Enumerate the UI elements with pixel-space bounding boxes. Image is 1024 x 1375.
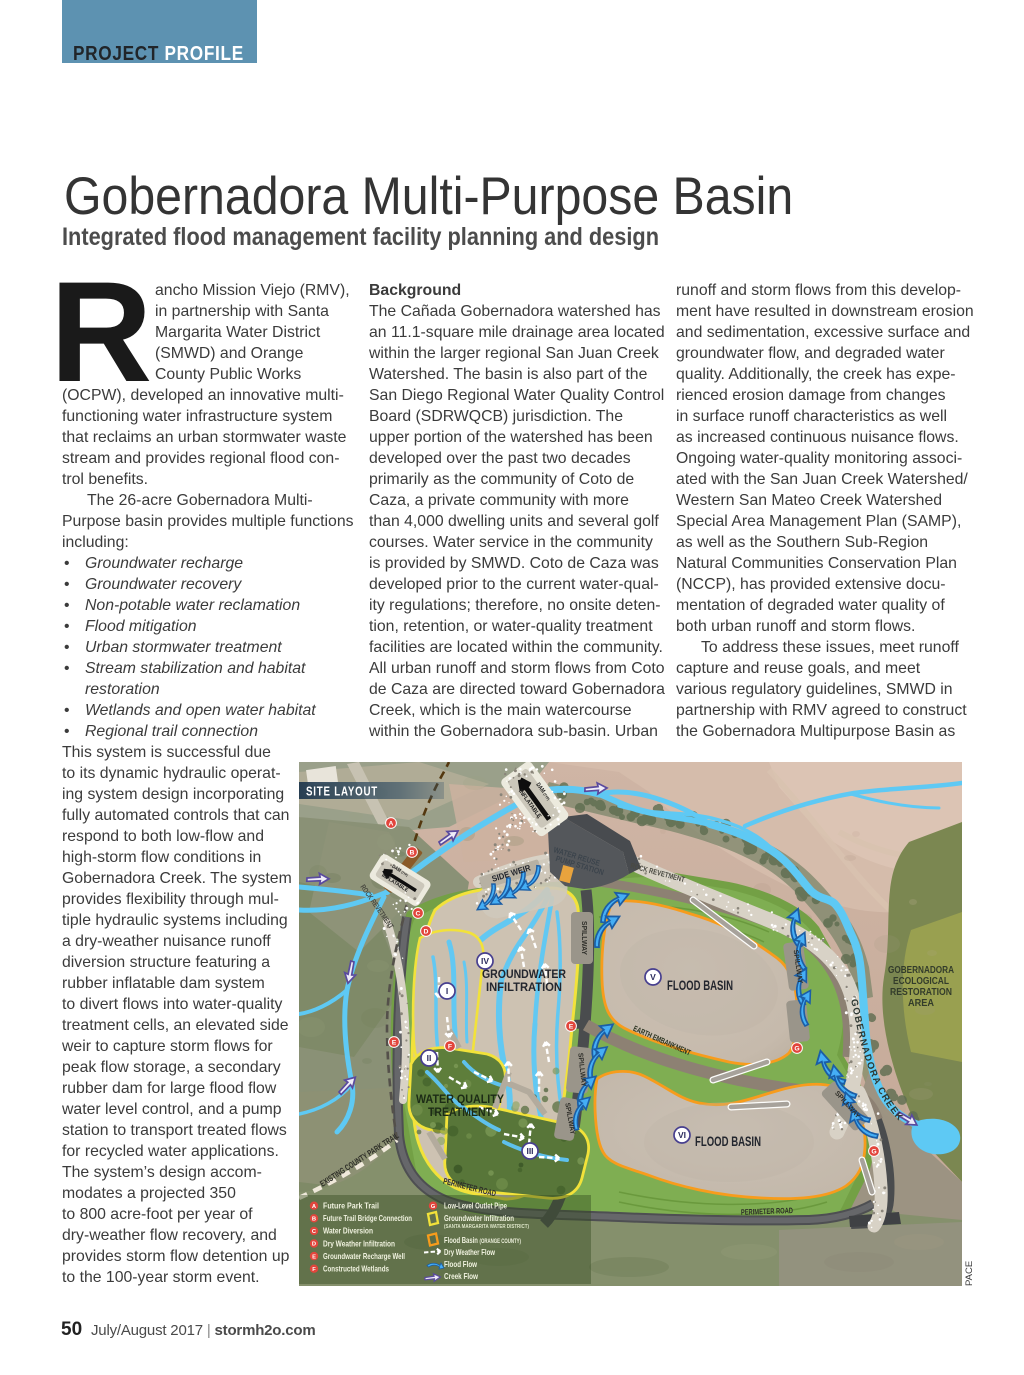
svg-text:G: G: [794, 1046, 799, 1053]
svg-text:Flood Flow: Flood Flow: [444, 1260, 477, 1269]
svg-text:E: E: [569, 1024, 574, 1031]
svg-text:B: B: [312, 1217, 316, 1223]
svg-text:PERIMETER ROAD: PERIMETER ROAD: [741, 1206, 793, 1217]
svg-text:Water Diversion: Water Diversion: [323, 1227, 373, 1236]
svg-text:IV: IV: [481, 956, 489, 966]
svg-text:Future Trail Bridge Connection: Future Trail Bridge Connection: [323, 1214, 412, 1223]
svg-text:Constructed Wetlands: Constructed Wetlands: [323, 1265, 389, 1274]
svg-text:II: II: [427, 1053, 432, 1063]
svg-text:Groundwater Infiltration: Groundwater Infiltration: [444, 1214, 514, 1223]
svg-text:A: A: [389, 821, 394, 828]
svg-text:C: C: [416, 911, 421, 918]
svg-text:F: F: [312, 1267, 316, 1273]
svg-text:INFILTRATION: INFILTRATION: [486, 982, 562, 994]
svg-text:D: D: [312, 1242, 316, 1248]
svg-text:Low-Level Outlet Pipe: Low-Level Outlet Pipe: [444, 1202, 507, 1211]
svg-text:E: E: [392, 1040, 397, 1047]
svg-text:SITE LAYOUT: SITE LAYOUT: [306, 785, 378, 799]
svg-text:GOBERNADORA: GOBERNADORA: [888, 965, 954, 976]
svg-text:F: F: [448, 1044, 452, 1051]
svg-text:G: G: [431, 1204, 436, 1210]
svg-text:Creek Flow: Creek Flow: [444, 1272, 478, 1281]
svg-text:FLOOD BASIN: FLOOD BASIN: [667, 978, 733, 993]
svg-text:V: V: [650, 972, 656, 982]
svg-text:Dry Weather Flow: Dry Weather Flow: [444, 1248, 495, 1257]
svg-text:Groundwater Recharge Well: Groundwater Recharge Well: [323, 1252, 405, 1261]
svg-text:Future Park Trail: Future Park Trail: [323, 1202, 379, 1211]
svg-text:Dry Weather Infiltration: Dry Weather Infiltration: [323, 1239, 395, 1248]
svg-text:III: III: [526, 1146, 533, 1156]
svg-text:I: I: [446, 986, 448, 996]
svg-text:RESTORATION: RESTORATION: [890, 987, 952, 998]
svg-text:E: E: [312, 1254, 316, 1260]
svg-text:G: G: [871, 1149, 876, 1156]
svg-text:D: D: [424, 929, 429, 936]
svg-text:B: B: [410, 850, 415, 857]
svg-text:TREATMENT: TREATMENT: [428, 1107, 492, 1119]
svg-text:(SANTA MARGARITA WATER DISTRIC: (SANTA MARGARITA WATER DISTRICT): [444, 1224, 529, 1230]
svg-text:ECOLOGICAL: ECOLOGICAL: [893, 976, 949, 987]
svg-text:GROUNDWATER: GROUNDWATER: [482, 969, 567, 981]
svg-text:VI: VI: [678, 1130, 686, 1140]
svg-text:WATER QUALITY: WATER QUALITY: [416, 1094, 504, 1106]
svg-text:FLOOD BASIN: FLOOD BASIN: [695, 1134, 761, 1149]
svg-text:SPILLWAY: SPILLWAY: [580, 921, 587, 955]
svg-text:AREA: AREA: [908, 998, 934, 1009]
